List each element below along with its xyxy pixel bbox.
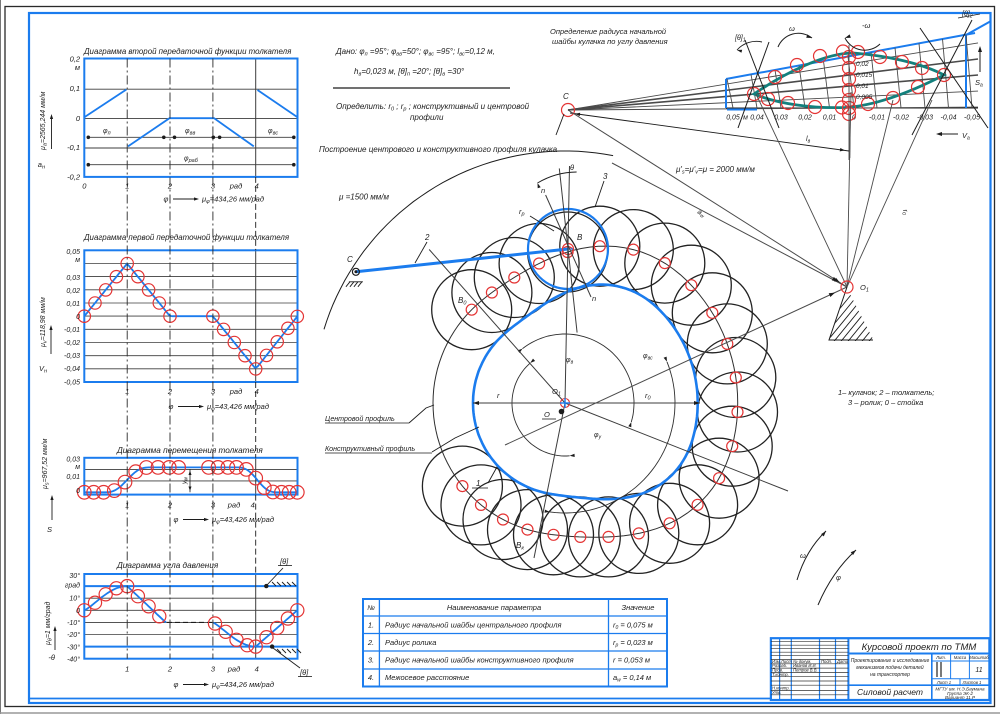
svg-text:Масштаб: Масштаб xyxy=(969,655,989,660)
svg-text:n: n xyxy=(541,186,545,195)
svg-text:Листов 1: Листов 1 xyxy=(962,680,982,685)
svg-text:θ: θ xyxy=(570,163,574,172)
svg-text:-θ: -θ xyxy=(48,653,55,662)
svg-text:rр = 0,023 м: rр = 0,023 м xyxy=(613,638,653,649)
svg-text:μ =1500 мм/м: μ =1500 мм/м xyxy=(338,193,389,202)
svg-text:Диаграмма первой передаточной: Диаграмма первой передаточной функции то… xyxy=(83,233,290,242)
svg-text:Т.контр.: Т.контр. xyxy=(772,672,789,677)
svg-text:0,02: 0,02 xyxy=(798,115,812,122)
svg-text:μφ=43,426 мм/рад: μφ=43,426 мм/рад xyxy=(211,515,274,526)
svg-text:Центровой профиль: Центровой профиль xyxy=(325,415,395,423)
svg-text:3.: 3. xyxy=(368,656,374,665)
svg-text:1: 1 xyxy=(476,479,480,488)
svg-text:O: O xyxy=(544,410,550,419)
svg-text:0,05: 0,05 xyxy=(66,249,80,256)
svg-text:φ: φ xyxy=(174,515,179,524)
svg-text:3 – ролик; 0 – стойка: 3 – ролик; 0 – стойка xyxy=(848,398,923,407)
svg-text:Проектирование и исследование: Проектирование и исследование xyxy=(851,658,930,664)
svg-text:-40°: -40° xyxy=(67,656,80,664)
svg-text:Диаграмма угла давления: Диаграмма угла давления xyxy=(116,561,219,570)
svg-text:2: 2 xyxy=(167,665,173,674)
svg-text:0,005: 0,005 xyxy=(856,94,873,101)
svg-text:φ: φ xyxy=(836,573,841,582)
svg-text:S: S xyxy=(47,525,52,534)
svg-text:[θ]: [θ] xyxy=(299,668,309,677)
svg-text:на транспортер: на транспортер xyxy=(870,672,910,678)
svg-text:0: 0 xyxy=(76,314,80,321)
svg-text:0,05: 0,05 xyxy=(726,115,740,122)
svg-text:4: 4 xyxy=(255,387,259,396)
svg-text:-0,02: -0,02 xyxy=(893,115,909,122)
svg-text:Петров В.В.: Петров В.В. xyxy=(793,668,818,673)
svg-text:Вариант 11.Р: Вариант 11.Р xyxy=(945,695,976,700)
svg-text:-0,03: -0,03 xyxy=(64,353,80,360)
svg-text:№: № xyxy=(367,605,375,612)
svg-text:Значение: Значение xyxy=(622,603,655,612)
svg-text:рад: рад xyxy=(229,182,243,191)
svg-text:рад: рад xyxy=(227,501,241,510)
svg-text:n: n xyxy=(592,294,596,303)
svg-text:-0,01: -0,01 xyxy=(64,327,80,334)
svg-text:ω: ω xyxy=(800,551,806,560)
svg-text:4: 4 xyxy=(255,665,259,674)
svg-text:-0,2: -0,2 xyxy=(67,173,81,182)
svg-text:Диаграмма второй передаточной: Диаграмма второй передаточной функции то… xyxy=(83,47,292,56)
svg-text:μ's=μ'v=μ = 2000 мм/м: μ's=μ'v=μ = 2000 мм/м xyxy=(675,165,755,176)
svg-text:C: C xyxy=(563,92,569,101)
svg-text:1: 1 xyxy=(125,665,129,674)
svg-text:Подп.: Подп. xyxy=(821,659,832,664)
svg-text:Силовой расчет: Силовой расчет xyxy=(857,687,923,697)
svg-text:0,03: 0,03 xyxy=(66,275,80,282)
svg-text:0,01: 0,01 xyxy=(856,83,869,90)
svg-text:-10°: -10° xyxy=(67,619,80,627)
svg-text:Радиус ролика: Радиус ролика xyxy=(385,638,436,647)
svg-text:1– кулачок; 2 – толкатель;: 1– кулачок; 2 – толкатель; xyxy=(838,388,934,397)
svg-text:м: м xyxy=(75,257,80,264)
svg-text:-20°: -20° xyxy=(67,631,80,639)
svg-text:Радиус начальной шайбы центра: Радиус начальной шайбы центрального проф… xyxy=(385,621,561,630)
svg-text:Радиус начальной шайбы констр: Радиус начальной шайбы конструктивного п… xyxy=(385,656,574,665)
svg-text:шайбы кулачка по углу давления: шайбы кулачка по углу давления xyxy=(552,37,668,46)
svg-text:0,04: 0,04 xyxy=(750,115,764,122)
svg-text:φ: φ xyxy=(164,195,169,204)
svg-text:рад: рад xyxy=(227,665,241,674)
svg-text:4: 4 xyxy=(251,501,255,510)
svg-text:Лист 1: Лист 1 xyxy=(936,680,951,685)
svg-text:0: 0 xyxy=(76,608,80,615)
svg-text:Дано: φп =95°; φвв=50°; φвс =9: Дано: φп =95°; φвв=50°; φвс =95°; lвс=0,… xyxy=(335,47,495,58)
svg-text:0,01: 0,01 xyxy=(66,301,80,308)
svg-text:ω: ω xyxy=(789,24,795,33)
svg-text:C: C xyxy=(347,255,353,264)
svg-text:[θ]: [θ] xyxy=(279,557,289,566)
svg-text:м: м xyxy=(75,63,80,72)
svg-text:10°: 10° xyxy=(69,595,80,603)
svg-text:r = 0,053 м: r = 0,053 м xyxy=(613,656,650,665)
svg-text:r0 = 0,075 м: r0 = 0,075 м xyxy=(613,621,653,632)
svg-text:рад: рад xyxy=(229,387,243,396)
svg-text:Построение центрового и констр: Построение центрового и конструктивного … xyxy=(319,145,558,154)
svg-text:4: 4 xyxy=(255,182,259,191)
svg-text:0,01: 0,01 xyxy=(823,115,837,122)
svg-text:м: м xyxy=(743,115,748,122)
svg-text:-0,04: -0,04 xyxy=(941,115,957,122)
svg-text:-0,05: -0,05 xyxy=(64,380,80,387)
svg-text:-0,02: -0,02 xyxy=(64,340,80,347)
svg-text:Курсовой проект по ТММ: Курсовой проект по ТММ xyxy=(862,642,977,653)
svg-text:0: 0 xyxy=(76,488,80,495)
svg-text:-0,01: -0,01 xyxy=(869,115,885,122)
svg-text:0,1: 0,1 xyxy=(70,84,80,93)
svg-text:-ω: -ω xyxy=(862,21,870,30)
svg-text:φ: φ xyxy=(169,402,174,411)
svg-text:Утв.: Утв. xyxy=(772,690,782,695)
svg-text:μφ=43,426 мм/рад: μφ=43,426 мм/рад xyxy=(206,402,269,413)
svg-text:Межосевое расстояние: Межосевое расстояние xyxy=(385,673,469,682)
svg-text:Наименование параметра: Наименование параметра xyxy=(447,603,541,612)
svg-text:0,02: 0,02 xyxy=(856,61,869,68)
svg-text:11: 11 xyxy=(975,667,982,674)
svg-text:-0,05: -0,05 xyxy=(964,115,980,122)
svg-text:μφ=434,26 мм/рад: μφ=434,26 мм/рад xyxy=(211,680,274,691)
svg-text:Дата: Дата xyxy=(836,659,849,664)
svg-text:2.: 2. xyxy=(367,638,374,647)
svg-text:Определить: r0 ; rр ; конструк: Определить: r0 ; rр ; конструктивный и ц… xyxy=(336,102,530,113)
svg-text:30°: 30° xyxy=(69,572,80,580)
svg-text:4.: 4. xyxy=(368,673,374,682)
svg-text:B: B xyxy=(577,233,583,242)
svg-text:град: град xyxy=(65,582,80,590)
svg-text:1.: 1. xyxy=(368,621,374,630)
svg-text:-0,04: -0,04 xyxy=(64,366,80,373)
svg-text:0,03: 0,03 xyxy=(66,457,80,464)
svg-text:м: м xyxy=(75,464,80,471)
svg-text:0,01: 0,01 xyxy=(66,474,80,481)
svg-text:-0,1: -0,1 xyxy=(67,143,80,152)
svg-text:2: 2 xyxy=(424,233,430,242)
svg-text:φ: φ xyxy=(174,680,179,689)
svg-text:3: 3 xyxy=(603,172,608,181)
svg-text:μφ=434,26 мм/рад: μφ=434,26 мм/рад xyxy=(201,195,264,206)
svg-text:Масса: Масса xyxy=(954,655,967,660)
svg-text:Диаграмма перемещения толкател: Диаграмма перемещения толкателя xyxy=(116,446,263,455)
svg-text:Лит.: Лит. xyxy=(935,655,946,660)
svg-text:Определение радиуса начальной: Определение радиуса начальной xyxy=(550,27,667,36)
svg-text:-30°: -30° xyxy=(67,644,80,652)
svg-text:механизмов подачи деталей: механизмов подачи деталей xyxy=(856,664,924,671)
svg-text:hв=0,023 м, [θ]п =20°; [θ]в: hв=0,023 м, [θ]п =20°; [θ]в =30° xyxy=(354,67,465,78)
svg-text:Конструктивный профиль: Конструктивный профиль xyxy=(325,445,415,453)
svg-text:0,015: 0,015 xyxy=(856,72,873,79)
svg-text:профили: профили xyxy=(410,113,444,122)
svg-text:0,02: 0,02 xyxy=(66,288,80,295)
